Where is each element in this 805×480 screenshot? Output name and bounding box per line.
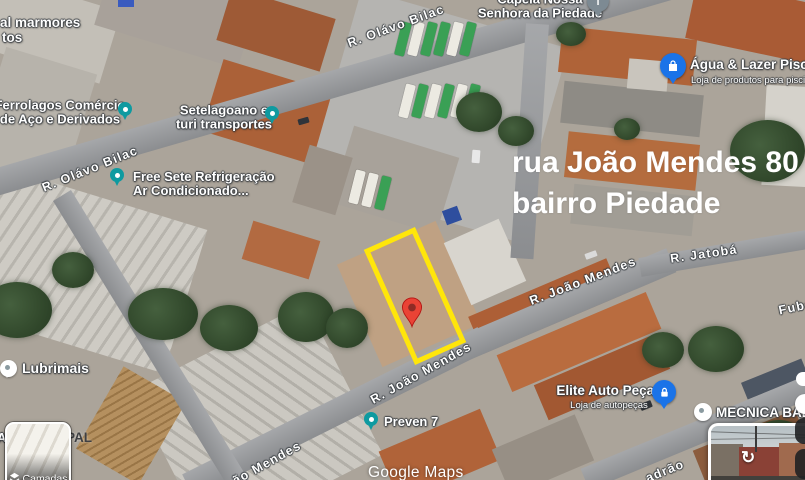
map-terrain-block bbox=[456, 92, 502, 132]
address-annotation: rua João Mendes 80 bairro Piedade bbox=[512, 142, 799, 224]
red-marker-icon[interactable] bbox=[401, 297, 423, 333]
street-label-fuba: Fubá bbox=[777, 297, 805, 318]
google-maps-watermark: Google Maps bbox=[368, 464, 464, 480]
poi-lubrimais[interactable]: Lubrimais bbox=[22, 362, 89, 376]
map-terrain-block bbox=[556, 22, 586, 46]
teal-pin-icon[interactable] bbox=[265, 106, 279, 120]
edge-button-partial[interactable] bbox=[795, 418, 805, 444]
poi-preven-7[interactable]: Preven 7 bbox=[384, 415, 438, 429]
map-terrain-block bbox=[472, 150, 481, 164]
map-terrain-block bbox=[642, 332, 684, 368]
map-terrain-block bbox=[118, 0, 134, 7]
poi-mecnica[interactable]: MECNICA BALD- bbox=[716, 406, 805, 420]
layers-control[interactable]: Camadas bbox=[5, 422, 71, 480]
map-terrain-block bbox=[128, 288, 198, 340]
street-view-thumbnail[interactable]: ↻ bbox=[708, 423, 805, 480]
map-terrain-block bbox=[688, 326, 744, 372]
map-terrain-block bbox=[685, 0, 805, 65]
map-terrain-block bbox=[584, 250, 597, 260]
poi-ferrolagos[interactable]: Ferrolagos Comércio de Aço e Derivados bbox=[0, 99, 125, 126]
poi-setelagoano[interactable]: Setelagoano e turi transportes bbox=[176, 104, 272, 131]
map-terrain-block bbox=[614, 118, 640, 140]
poi-agua-lazer[interactable]: Água & Lazer Piscina Loja de produtos pa… bbox=[690, 58, 805, 86]
edge-button-partial[interactable] bbox=[796, 372, 805, 386]
map-terrain-block bbox=[242, 221, 321, 280]
poi-dot-icon[interactable] bbox=[694, 403, 712, 421]
map-terrain-block bbox=[492, 414, 594, 480]
poi-capela[interactable]: Capela Nossa Senhora da Piedade bbox=[478, 0, 602, 20]
poi-free-sete[interactable]: Free Sete Refrigeração Ar Condicionado..… bbox=[133, 170, 275, 197]
edge-button-partial[interactable] bbox=[795, 449, 805, 479]
map-terrain-block bbox=[278, 292, 334, 342]
teal-pin-icon[interactable] bbox=[364, 412, 378, 426]
photosphere-rotate-icon: ↻ bbox=[741, 448, 755, 468]
padlock-icon[interactable] bbox=[652, 380, 676, 404]
layers-label: Camadas bbox=[23, 473, 68, 480]
satellite-map[interactable]: R. Olávo Bilac R. Olávo Bilac R. João Me… bbox=[0, 0, 805, 480]
poi-marmores[interactable]: al marmores tos bbox=[0, 16, 80, 45]
poi-elite-auto[interactable]: Elite Auto Peças Loja de autopeças bbox=[556, 384, 661, 411]
map-terrain-block bbox=[52, 252, 94, 288]
teal-pin-icon[interactable] bbox=[118, 102, 132, 116]
map-terrain-block bbox=[326, 308, 368, 348]
map-terrain-block bbox=[200, 305, 258, 351]
teal-pin-icon[interactable] bbox=[110, 168, 124, 182]
shopping-bag-icon[interactable] bbox=[660, 53, 686, 79]
poi-dot-icon[interactable] bbox=[0, 360, 17, 377]
layers-icon bbox=[9, 472, 20, 480]
